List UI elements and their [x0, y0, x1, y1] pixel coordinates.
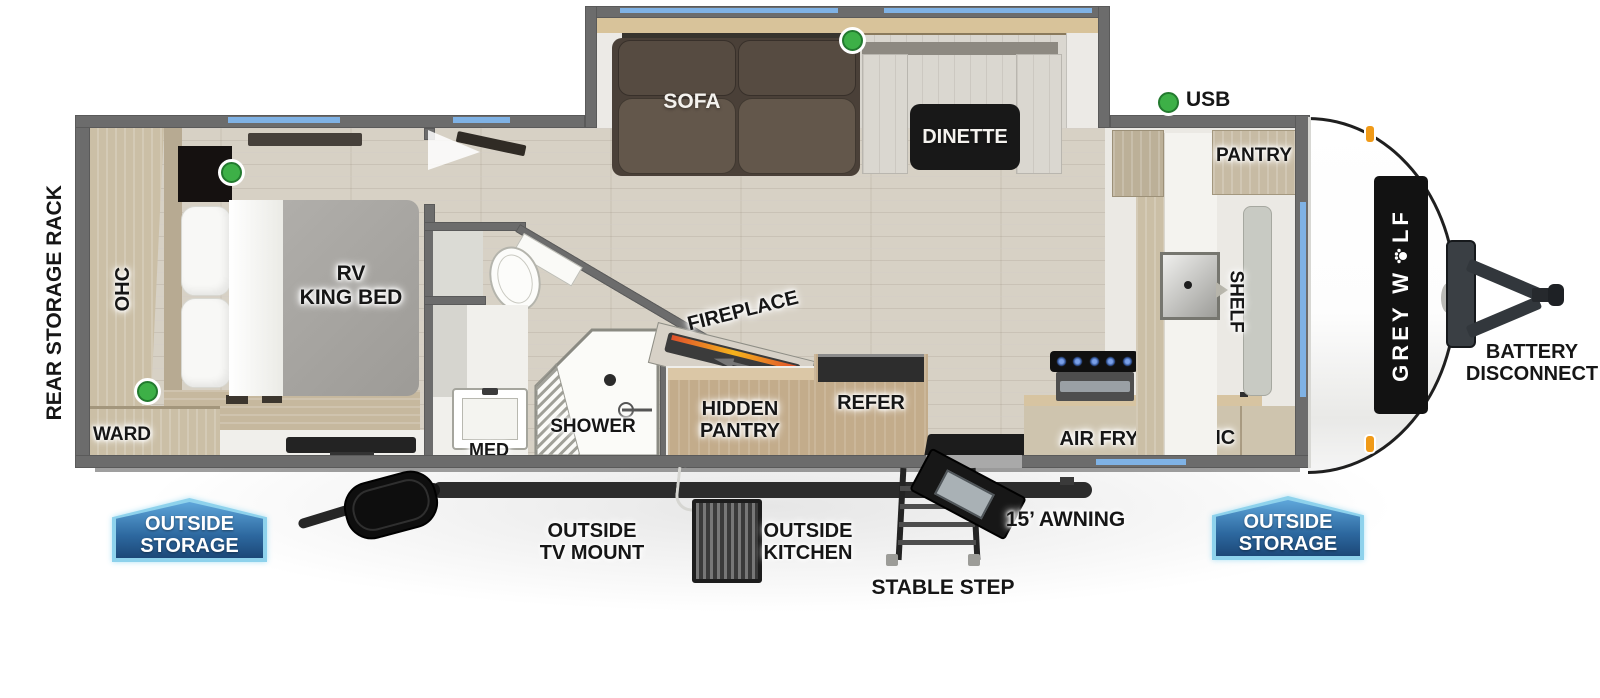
brand-text-left: GREY W	[1388, 269, 1414, 382]
burner-icon	[1056, 356, 1067, 367]
sofa-back-cushion	[738, 40, 856, 96]
burner-icon	[1072, 356, 1083, 367]
shower	[528, 326, 662, 460]
hitch-arm-upper	[1465, 259, 1542, 301]
kitchen-sink-drain	[1184, 281, 1192, 289]
hitch-coupler	[1548, 284, 1564, 306]
bed-drawer-pull	[226, 395, 248, 404]
window-bedroom-top	[228, 117, 340, 123]
shower-drain	[604, 374, 616, 386]
sofa: SOFA	[612, 38, 860, 176]
outside-storage-badge-left: OUTSIDE STORAGE	[112, 498, 267, 562]
hidden-pantry-label-line2: PANTRY	[700, 420, 780, 442]
hidden-pantry-label-line1: HIDDEN	[702, 398, 779, 420]
vanity-counter	[433, 305, 467, 397]
storage-right-line1: OUTSIDE	[1244, 511, 1333, 533]
outside-tv-line2: TV MOUNT	[540, 542, 644, 564]
window-slide-dinette	[884, 8, 1092, 13]
awning-label: 15’ AWNING	[998, 508, 1133, 532]
bed-label-line1: RV	[337, 262, 366, 285]
usb-legend-label: USB	[1186, 88, 1246, 112]
sofa-back-cushion	[618, 40, 736, 96]
toilet-platform	[433, 230, 483, 306]
rear-storage-rack-label: REAR STORAGE RACK	[43, 184, 67, 422]
toilet-room-wall-bottom	[424, 296, 486, 305]
battery-label-line1: BATTERY	[1486, 341, 1578, 363]
stable-step-label: STABLE STEP	[868, 576, 1018, 600]
bed-sheet	[229, 200, 283, 396]
sofa-seat-cushion	[738, 98, 856, 174]
wolf-paw-icon	[1393, 248, 1409, 264]
outside-storage-badge-right: OUTSIDE STORAGE	[1212, 496, 1364, 560]
awning-bracket	[1060, 477, 1074, 485]
window-slide-sofa	[620, 8, 838, 13]
stove-cooktop	[1050, 351, 1138, 372]
outside-tv-mount-label: OUTSIDE TV MOUNT	[518, 520, 666, 565]
refrigerator-top	[818, 354, 924, 382]
marker-light	[1366, 436, 1374, 452]
kitchen-sink	[1160, 252, 1220, 320]
floorplan-canvas: SOFA DINETTE RV KING BED WARD OHC	[0, 0, 1600, 698]
toilet-seat	[492, 250, 538, 307]
burner-icon	[1105, 356, 1116, 367]
slide-endcap-right	[1066, 33, 1099, 128]
dinette-bench-right	[1016, 54, 1062, 174]
bed-label-line2: KING BED	[300, 286, 403, 309]
kitchen-ohc-cabinet	[1112, 130, 1164, 197]
battery-label-line2: DISCONNECT	[1466, 363, 1598, 385]
brand-text-right: LF	[1388, 208, 1414, 243]
wall-left	[75, 115, 90, 468]
marker-light	[1366, 126, 1374, 142]
bed-pillow	[181, 206, 231, 296]
refrigerator-label: REFER	[814, 392, 928, 414]
outside-tv-line1: OUTSIDE	[548, 520, 637, 542]
bedroom-ohc-label: OHC	[112, 239, 134, 339]
hitch-arm-lower	[1465, 296, 1542, 338]
vanity-sink-basin	[462, 398, 518, 440]
storage-left-line1: OUTSIDE	[145, 513, 234, 535]
hidden-pantry-label: HIDDEN PANTRY	[666, 398, 814, 443]
usb-dot-bedroom-head	[221, 162, 242, 183]
window-right-vertical	[1300, 202, 1306, 397]
wall-top-right	[1110, 115, 1310, 128]
dinette-table: DINETTE	[910, 104, 1020, 170]
vanity-faucet	[482, 388, 498, 395]
stable-step-foot	[968, 554, 980, 566]
spare-tire-rim	[348, 475, 434, 536]
dinette-bench-left	[862, 54, 908, 174]
usb-dot-bedroom-foot	[137, 381, 158, 402]
shelf-label: SHELF	[1225, 252, 1246, 352]
stable-step-foot	[886, 554, 898, 566]
outside-kitchen-line1: OUTSIDE	[764, 520, 853, 542]
kitchen-shelf-slab	[1243, 206, 1272, 396]
stable-step-rung	[899, 522, 975, 527]
wardrobe-label: WARD	[86, 424, 158, 445]
stable-step-rung	[898, 540, 976, 545]
toilet-room-wall-top	[424, 222, 526, 231]
usb-legend-dot	[1158, 92, 1179, 113]
storage-right-line2: STORAGE	[1239, 533, 1338, 555]
pantry-label: PANTRY	[1206, 145, 1302, 166]
bedroom-tv	[286, 437, 416, 453]
burner-icon	[1089, 356, 1100, 367]
front-cap-seam	[1308, 117, 1311, 468]
burner-icon	[1122, 356, 1133, 367]
outside-kitchen-line2: KITCHEN	[764, 542, 853, 564]
slide-wall-right	[1098, 6, 1110, 128]
slide-wall-left	[585, 6, 597, 128]
dinette-label: DINETTE	[922, 126, 1008, 148]
bedroom-shelf	[248, 133, 362, 146]
sofa-label: SOFA	[632, 90, 752, 113]
shower-label: SHOWER	[538, 416, 648, 437]
badge-text: OUTSIDE STORAGE	[1212, 496, 1364, 560]
window-hall-top	[453, 117, 510, 123]
bed-pillow	[181, 298, 231, 388]
bed-label: RV KING BED	[283, 262, 419, 309]
brand-logo: GREY W LF	[1374, 176, 1428, 414]
outside-kitchen-label: OUTSIDE KITCHEN	[744, 520, 872, 565]
storage-left-line2: STORAGE	[140, 535, 239, 557]
badge-text: OUTSIDE STORAGE	[112, 498, 267, 562]
battery-disconnect-label: BATTERY DISCONNECT	[1462, 341, 1600, 386]
hidden-pantry-top-face	[668, 368, 816, 380]
window-bottom-kitchen	[1096, 459, 1186, 465]
stove-oven-door	[1060, 381, 1130, 392]
usb-dot-slide	[842, 30, 863, 51]
